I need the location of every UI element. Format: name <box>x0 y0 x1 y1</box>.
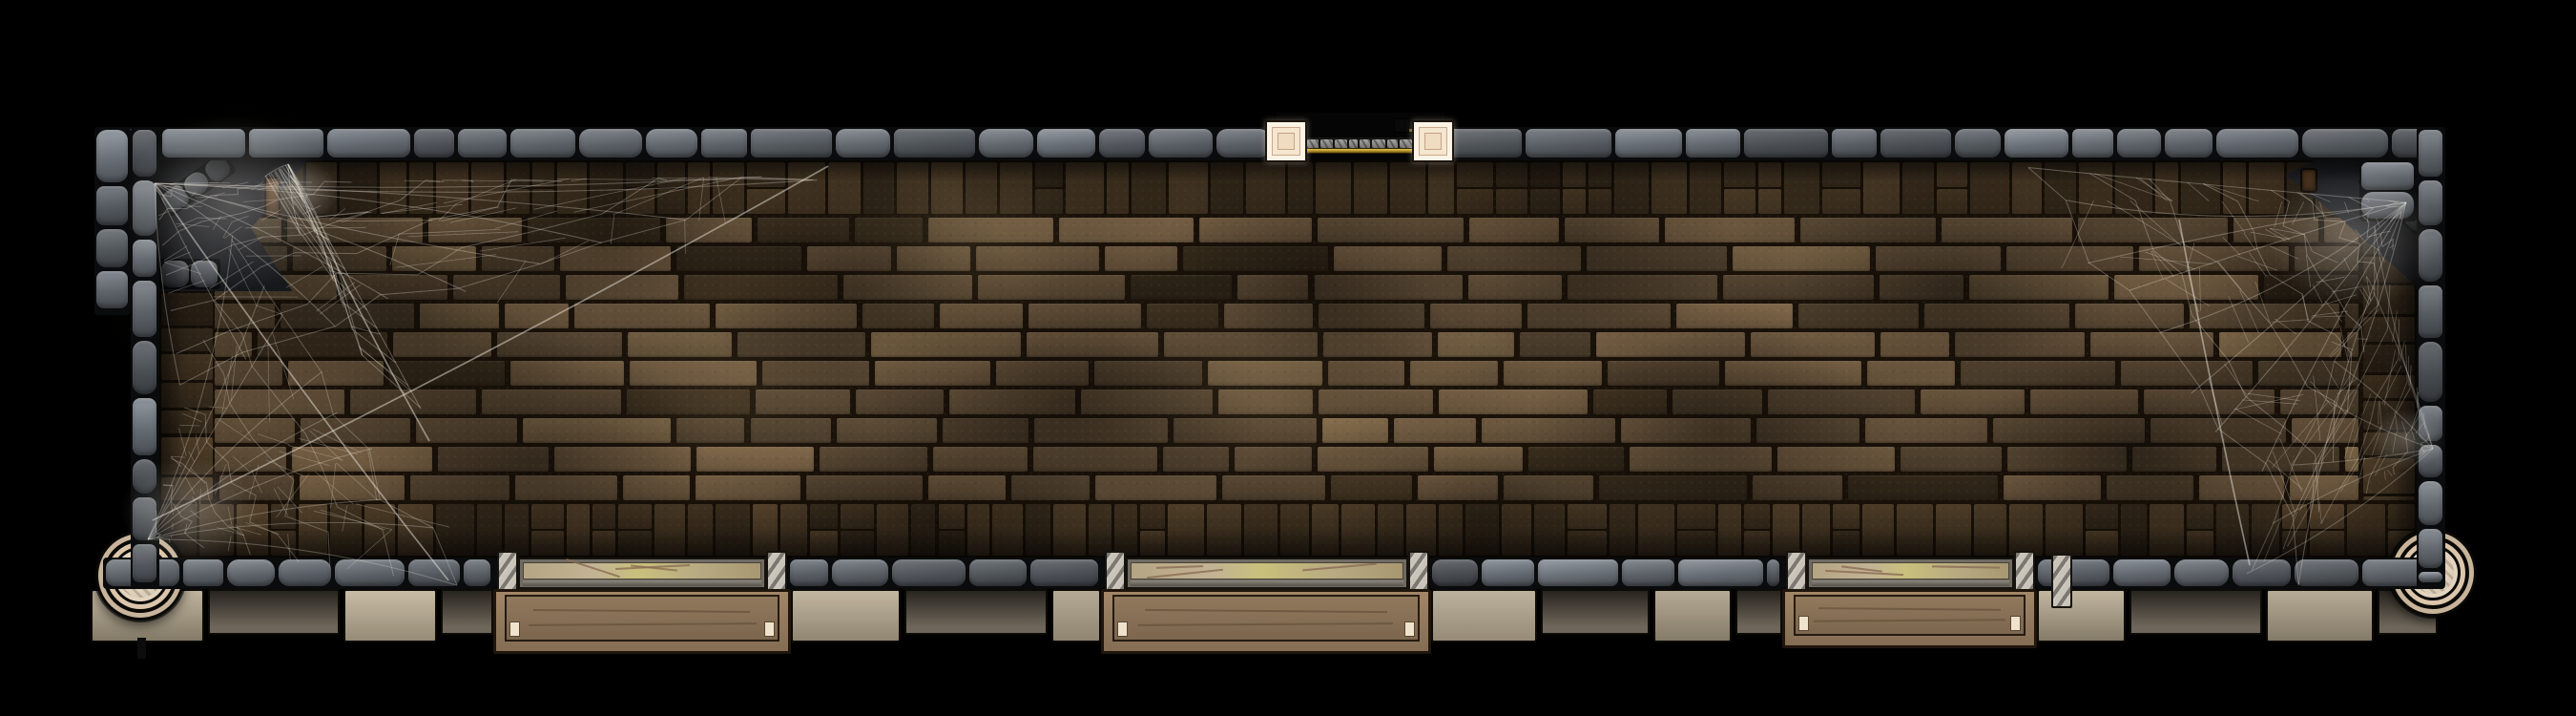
border-tile <box>1140 504 1165 529</box>
stone-block <box>2233 559 2292 586</box>
stone-block <box>1149 129 1213 158</box>
floor-brick <box>843 275 971 300</box>
floor-brick <box>855 218 923 242</box>
floor-brick <box>875 361 989 386</box>
floor-brick <box>1608 361 1720 386</box>
window-post <box>2014 551 2035 592</box>
floor-brick <box>420 304 498 328</box>
glass-crack <box>1156 565 1203 569</box>
ledge-merlon <box>791 589 901 642</box>
stone-block <box>1432 559 1478 586</box>
floor-brick <box>1328 361 1404 386</box>
stone-block <box>2302 129 2388 158</box>
floor-brick <box>666 218 752 242</box>
stone-block <box>832 559 888 586</box>
floor-brick <box>389 361 505 386</box>
glass-sill <box>1131 580 1403 586</box>
border-tile <box>618 504 652 529</box>
floor-brick <box>1394 418 1477 443</box>
floor-brick <box>1924 304 2068 328</box>
stone-block <box>96 130 128 182</box>
border-tile <box>1822 189 1860 214</box>
floor-brick <box>627 390 750 414</box>
border-tile <box>1563 189 1585 214</box>
stone-block <box>2113 559 2171 586</box>
stone-block <box>2419 481 2442 525</box>
floor-brick <box>1876 246 2001 271</box>
pillar-core <box>1424 133 1442 150</box>
floor-brick <box>2075 304 2185 328</box>
wall-south-3 <box>2035 558 2440 589</box>
dungeon-battlemap <box>0 0 2576 716</box>
border-tile <box>810 504 838 529</box>
stone-block <box>979 129 1033 158</box>
border-tile <box>1758 189 1781 214</box>
stone-block <box>1482 559 1534 586</box>
floor-brick <box>554 447 691 472</box>
floor-brick <box>2004 475 2102 500</box>
wall-north-0 <box>94 127 1277 160</box>
floor-brick <box>940 304 1023 328</box>
floor-brick <box>2190 304 2339 328</box>
border-tile <box>507 189 530 214</box>
floor-brick <box>1961 361 2115 386</box>
window-post <box>497 551 518 592</box>
floor-brick <box>300 475 404 500</box>
stone-block <box>191 261 218 287</box>
floor-brick <box>215 332 252 357</box>
border-tile <box>747 189 785 214</box>
floor-brick <box>1621 418 1751 443</box>
floor-brick <box>978 275 1125 300</box>
ledge-merlon <box>1431 589 1537 642</box>
floor-brick <box>820 447 927 472</box>
stone-block <box>227 559 275 586</box>
stone-block <box>1615 129 1682 158</box>
stone-block <box>2295 559 2358 586</box>
floor-brick <box>628 332 732 357</box>
border-tile <box>1457 189 1493 214</box>
glass-pane <box>1812 562 2009 579</box>
ledge-recess <box>1735 589 1782 635</box>
stone-block <box>969 559 1027 586</box>
ledge-merlon <box>1653 589 1732 642</box>
floor-brick <box>1237 275 1309 300</box>
floor-brick <box>1095 475 1216 500</box>
floor-brick <box>1733 246 1870 271</box>
floor-brick <box>1011 475 1091 500</box>
floor-brick <box>574 304 710 328</box>
ledge-merlon <box>2037 589 2126 642</box>
stone-block <box>133 544 156 582</box>
floor-brick <box>280 304 414 328</box>
window-post <box>766 551 787 592</box>
wall-south-1 <box>787 558 1105 589</box>
border-tile <box>626 189 654 214</box>
floor-brick <box>949 390 1075 414</box>
floor-brick <box>2107 475 2192 500</box>
floor-brick <box>1665 218 1795 242</box>
glass-pane <box>1131 562 1403 579</box>
floor-brick <box>1756 418 1859 443</box>
floor-brick <box>215 361 282 386</box>
floor-brick <box>1504 361 1602 386</box>
floor-brick <box>1880 275 1963 300</box>
wall-shadow-left <box>159 160 184 558</box>
floor-brick <box>1520 332 1590 357</box>
floor-brick <box>293 246 385 271</box>
balcony <box>493 589 791 654</box>
entrance-pillar <box>1412 120 1454 162</box>
wood-grain <box>1818 607 2001 610</box>
stone-block <box>2216 129 2299 158</box>
glass-sill <box>1812 580 2009 586</box>
stone-block <box>1099 129 1145 158</box>
floor-brick <box>1867 361 1955 386</box>
stone-block <box>1880 129 1950 158</box>
floor-brick <box>1568 275 1718 300</box>
stone-block <box>133 341 156 394</box>
glass-crack <box>1302 563 1377 572</box>
floor-brick <box>1848 475 1997 500</box>
floor-brick <box>2132 447 2217 472</box>
stone-block <box>1744 129 1828 158</box>
floor-brick <box>2199 475 2285 500</box>
floor-brick <box>1753 475 1842 500</box>
floor-brick <box>1751 332 1874 357</box>
floor-brick <box>684 275 839 300</box>
floor-brick <box>1094 361 1202 386</box>
stone-block <box>2117 129 2161 158</box>
stone-block <box>133 240 156 277</box>
floor-brick <box>1174 418 1317 443</box>
stone-block <box>162 129 245 158</box>
floor-brick <box>756 390 850 414</box>
balcony-pivot <box>509 621 520 637</box>
wood-grain <box>1145 608 1387 612</box>
border-tile <box>2086 504 2118 529</box>
stone-block <box>892 559 966 586</box>
balcony <box>1782 589 2037 648</box>
floor-brick <box>1147 304 1218 328</box>
border-tile <box>2187 504 2213 529</box>
floor-brick <box>737 332 865 357</box>
floor-brick <box>1439 390 1588 414</box>
floor-brick <box>762 361 869 386</box>
stone-block <box>133 130 156 177</box>
border-tile <box>939 504 965 529</box>
floor-brick <box>696 475 800 500</box>
stone-block <box>1832 129 1877 158</box>
floor-brick <box>1447 246 1581 271</box>
floor-brick <box>528 218 660 242</box>
floor-brick <box>1438 332 1513 357</box>
stone-block <box>1526 129 1612 158</box>
border-tile <box>306 189 338 214</box>
stone-block <box>701 129 747 158</box>
stone-block <box>579 129 642 158</box>
floor-brick <box>1725 361 1861 386</box>
floor-brick <box>2345 447 2358 472</box>
floor-brick <box>410 475 509 500</box>
floor-brick <box>1768 390 1915 414</box>
floor-brick <box>1199 218 1311 242</box>
stone-block <box>836 129 890 158</box>
floor-brick <box>515 475 617 500</box>
floor-brick <box>2222 447 2339 472</box>
floor-brick <box>1430 304 1522 328</box>
floor-brick <box>928 218 1053 242</box>
balcony-panel <box>1794 595 2025 636</box>
wood-grain <box>1814 619 2005 621</box>
floor-brick <box>292 447 431 472</box>
floor-brick <box>1033 447 1157 472</box>
stone-block <box>335 559 405 586</box>
stone-block <box>2419 342 2442 402</box>
floor-brick <box>862 304 934 328</box>
stone-block <box>96 186 128 225</box>
stone-block <box>1686 129 1740 158</box>
stone-block <box>183 559 223 586</box>
floor-brick <box>751 418 831 443</box>
balcony <box>1101 589 1431 654</box>
stone-block <box>327 129 410 158</box>
wall-south-0 <box>103 558 497 589</box>
floor-brick <box>350 390 476 414</box>
floor-brick <box>2114 275 2258 300</box>
ledge-recess <box>208 589 340 635</box>
entrance-dark-box <box>1394 118 1409 133</box>
stone-block <box>646 129 696 158</box>
floor-brick <box>1777 447 1896 472</box>
floor-brick <box>676 246 801 271</box>
floor-brick <box>2280 390 2358 414</box>
stone-block <box>2419 180 2442 225</box>
floor-brick <box>438 447 550 472</box>
floor-brick <box>928 475 1005 500</box>
stone-block <box>2165 129 2212 158</box>
stone-block <box>2419 285 2442 338</box>
border-tile <box>1530 189 1561 214</box>
floor-brick <box>215 304 275 328</box>
balcony-pivot <box>1798 616 1809 631</box>
border-tile <box>592 504 615 529</box>
floor-brick <box>482 390 620 414</box>
floor-brick <box>1222 475 1325 500</box>
border-tile <box>532 189 554 214</box>
stone-block <box>2038 559 2109 586</box>
border-tile <box>1677 504 1715 529</box>
floor-brick <box>1723 275 1874 300</box>
stone-block <box>1030 559 1098 586</box>
stone-block <box>1678 559 1762 586</box>
floor-brick <box>1105 246 1176 271</box>
floor-brick <box>1318 447 1428 472</box>
stone-block <box>2419 406 2442 441</box>
stone-block <box>2174 559 2229 586</box>
stone-block <box>510 129 575 158</box>
floor-brick <box>1527 304 1670 328</box>
wall-south-2 <box>1429 558 1786 589</box>
floor-brick <box>758 218 848 242</box>
stone-block <box>790 559 828 586</box>
stone-block <box>2361 192 2414 219</box>
floor-brick <box>453 275 560 300</box>
floor-brick <box>392 246 476 271</box>
floor-brick <box>1318 218 1464 242</box>
floor-brick <box>1901 447 2002 472</box>
hatched-beam <box>2051 554 2072 608</box>
stone-block <box>2419 445 2442 477</box>
floor-brick <box>1163 447 1229 472</box>
border-tile <box>1496 189 1527 214</box>
floor-brick <box>856 390 944 414</box>
floor-brick <box>871 332 1020 357</box>
border-tile <box>340 189 377 214</box>
floor-brick <box>1599 475 1747 500</box>
border-tile <box>841 504 874 529</box>
floor-brick <box>258 332 387 357</box>
floor-brick <box>2078 218 2228 242</box>
stone-block <box>1622 559 1675 586</box>
floor-brick <box>1596 332 1746 357</box>
pillar-core <box>1278 133 1295 150</box>
floor-brick <box>1993 418 2145 443</box>
ledge-merlon <box>2266 589 2374 642</box>
floor-brick <box>996 361 1090 386</box>
floor-brick <box>1955 332 2085 357</box>
floor-brick <box>1630 447 1772 472</box>
floor-brick <box>1587 246 1726 271</box>
ledge-merlon <box>343 589 438 642</box>
floor-brick <box>393 332 491 357</box>
floor-brick <box>343 275 447 300</box>
floor-brick <box>1865 418 1987 443</box>
stone-block <box>279 559 331 586</box>
floor-brick <box>1482 418 1615 443</box>
wall-west <box>131 127 159 589</box>
stone-block <box>751 129 832 158</box>
floor-brick <box>215 390 344 414</box>
floor-brick <box>1319 304 1424 328</box>
floor-brick <box>976 246 1099 271</box>
floor-brick <box>2030 390 2138 414</box>
floor-brick <box>1800 218 1936 242</box>
balcony-panel <box>505 595 779 642</box>
floor-brick <box>1418 475 1499 500</box>
floor-brick <box>2345 304 2358 328</box>
window-post <box>1786 551 1807 592</box>
floor-brick <box>1434 447 1524 472</box>
stone-block <box>133 497 156 541</box>
stone-block <box>1767 559 1779 586</box>
stone-block <box>2419 229 2442 282</box>
stone-block <box>133 180 156 236</box>
balcony-pivot <box>764 621 775 637</box>
ledge-recess <box>2129 589 2262 635</box>
wood-grain <box>1138 622 1393 625</box>
stone-block <box>464 559 490 586</box>
floor-brick <box>482 246 555 271</box>
floor-brick <box>1028 304 1141 328</box>
stained-glass-window <box>1807 558 2014 589</box>
glass-pane <box>523 562 761 579</box>
floor-brick <box>2347 332 2358 357</box>
glass-sill <box>523 580 761 586</box>
stone-block <box>1037 129 1095 158</box>
wall-ne-corner-block <box>2359 160 2417 221</box>
floor-brick <box>219 475 295 500</box>
stone-block <box>458 129 507 158</box>
floor-brick <box>505 304 570 328</box>
floor-brick <box>1315 275 1464 300</box>
debris-post <box>264 177 280 219</box>
floor-brick <box>897 246 970 271</box>
balcony-pivot <box>2010 616 2021 631</box>
floor-brick <box>287 218 424 242</box>
stone-block <box>96 271 128 308</box>
floor-brick <box>716 304 857 328</box>
stained-glass-window <box>1126 558 1408 589</box>
wood-grain <box>533 609 750 612</box>
border-tile <box>531 504 564 529</box>
stone-block <box>894 129 975 158</box>
floor-brick <box>2090 332 2213 357</box>
balcony-panel <box>1112 595 1420 642</box>
floor-brick <box>1164 332 1318 357</box>
floor-brick <box>623 475 690 500</box>
entrance-pillar <box>1265 120 1307 162</box>
floor-brick <box>416 418 517 443</box>
floor-brick <box>523 418 671 443</box>
floor-brick <box>2258 361 2358 386</box>
floor-brick <box>1410 361 1498 386</box>
floor-brick <box>943 418 1028 443</box>
stone-block <box>408 559 460 586</box>
floor-brick <box>1334 246 1442 271</box>
floor-brick <box>1676 304 1793 328</box>
glass-crack <box>615 564 690 570</box>
floor-brick <box>1224 304 1313 328</box>
glass-crack <box>1932 566 2000 569</box>
glass-crack <box>1147 569 1222 579</box>
floor-brick <box>676 418 745 443</box>
stone-block <box>133 398 156 455</box>
floor-brick <box>1798 304 1920 328</box>
tower-tick <box>137 638 146 659</box>
border-tile <box>2310 504 2344 529</box>
stone-block <box>1538 559 1617 586</box>
floor-brick <box>1323 332 1432 357</box>
stone-block <box>2419 529 2442 568</box>
floor-brick <box>215 418 295 443</box>
floor-brick <box>1565 218 1660 242</box>
floor-brick <box>301 418 410 443</box>
border-tile <box>1589 189 1611 214</box>
floor-brick <box>1969 275 2109 300</box>
floor-brick <box>288 361 384 386</box>
wall-north-1 <box>1443 127 2445 160</box>
stone-block <box>2419 130 2442 177</box>
stone-block <box>96 229 128 267</box>
floor-brick <box>1235 447 1312 472</box>
ledge-recess <box>441 589 493 635</box>
border-tile <box>1035 189 1063 214</box>
floor-brick <box>1469 218 1559 242</box>
glass-crack <box>1825 570 1903 576</box>
balcony-pivot <box>1404 621 1415 637</box>
stone-block <box>249 129 324 158</box>
